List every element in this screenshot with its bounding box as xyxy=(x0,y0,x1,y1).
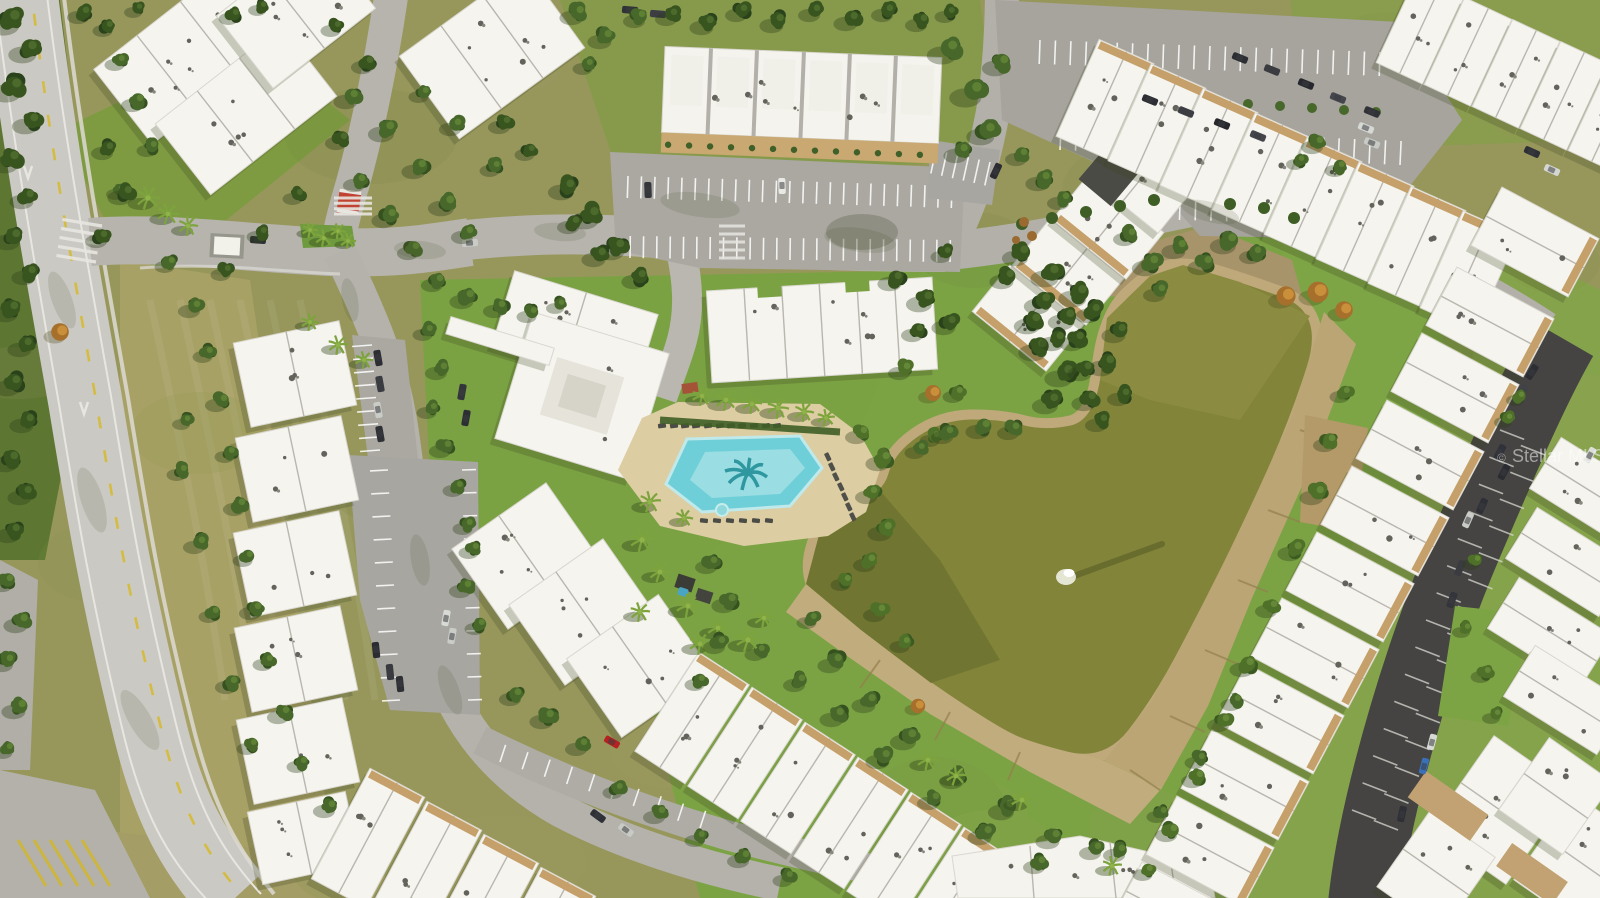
svg-text:Stellar MLS: Stellar MLS xyxy=(1512,446,1600,466)
svg-text:©: © xyxy=(1497,451,1506,465)
